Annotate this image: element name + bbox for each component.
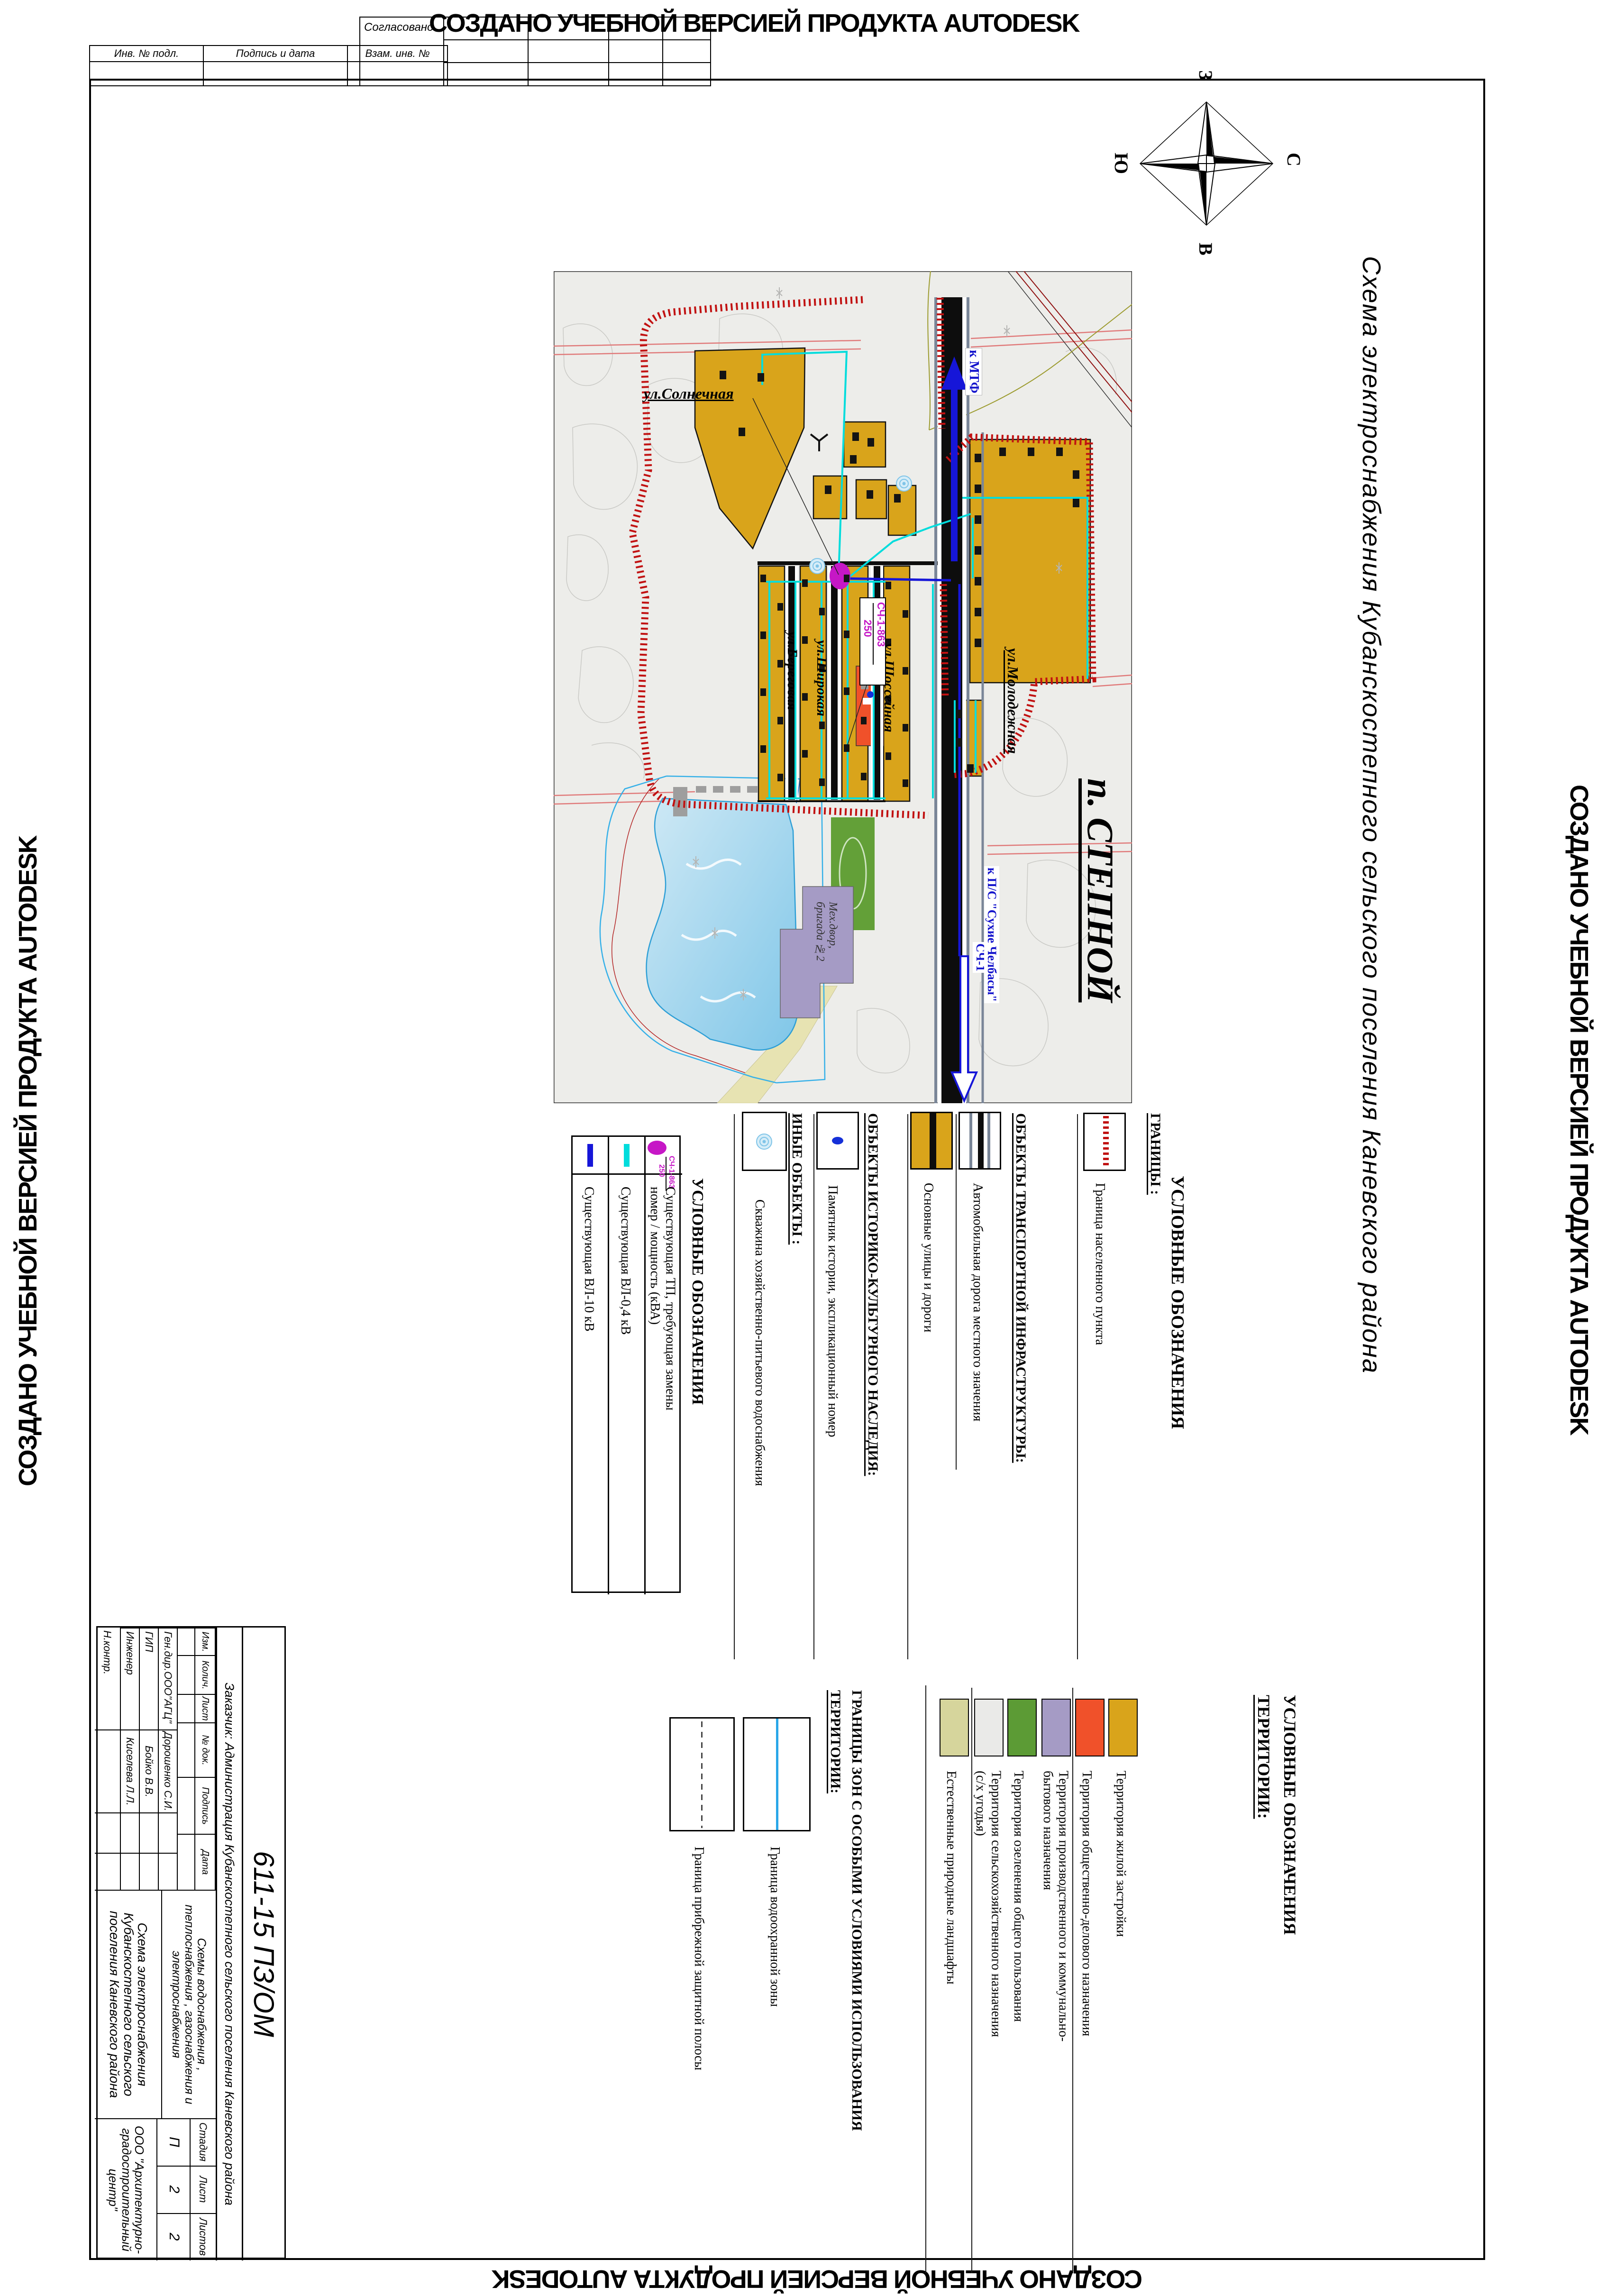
settlement-name: п. СТЕПНОЙ [1079,778,1122,1002]
tb-sig [139,1812,159,1854]
legend-separator [907,1114,908,1659]
tb-project: Схемы водоснабжения , теплоснабжения , г… [161,1890,216,2119]
legend-zones-heading-1: ГРАНИЦЫ ЗОН С ОСОБЫМИ УСЛОВИЯМИ ИСПОЛЬЗО… [849,1690,865,2131]
approval-grid-cell [528,39,609,63]
legend-zones-heading-2: ТЕРРИТОРИИ: [827,1690,843,1793]
territory-swatch-industrial [1041,1699,1071,1756]
watermark-bottom: СОЗДАНО УЧЕБНОЙ ВЕРСИЕЙ ПРОДУКТА AUTODES… [492,2264,1142,2294]
compass-east-label: В [1195,243,1217,256]
approval-grid-cell [443,39,529,63]
legend-power-heading: УСЛОВНЫЕ ОБОЗНАЧЕНИЯ [688,1178,706,1405]
legend-road-label: Автомобильная дорога местного значения [970,1183,985,1421]
tb-date [95,1853,121,1891]
tb-empty [177,1722,195,1778]
territory-swatch-residential [1108,1699,1138,1756]
territory-swatch-natural [940,1699,969,1756]
border-symbol-hatch [1103,1116,1109,1168]
territory-label-natural: Естественные природные ландшафты [943,1771,959,1985]
tb-empty [177,1655,195,1695]
monument-legend-icon [818,1113,858,1168]
legend-territories-heading-2: ТЕРРИТОРИИ: [1254,1695,1274,1819]
legend-transport-heading: ОБЪЕКТЫ ТРАНСПОРТНОЙ ИНФРАСТРУКТУРЫ: [1013,1113,1029,1463]
watermark-right: СОЗДАНО УЧЕБНОЙ ВЕРСИЕЙ ПРОДУКТА AUTODES… [1564,785,1594,1435]
tb-listov-value: 2 [156,2213,191,2260]
stamp-empty-1 [89,61,204,86]
street-symbol-line [930,1113,936,1168]
legend-other-heading: ИНЫЕ ОБЪЕКТЫ : [789,1113,805,1244]
map-panel: ул.Солнечная ул.Береговая ул.Широкая ул.… [554,271,1132,1103]
pond [646,798,798,1050]
stamp-sign-date: Подпись и дата [203,45,348,62]
to-substation-label: к П/С "Сухие Челбасы" [984,866,999,1003]
fraction-bar [666,1157,667,1191]
territory-label-residential: Территория жилой застройки [1113,1771,1128,1937]
tb-list: Лист [194,1694,216,1723]
legend-street-label: Основные улицы и дороги [921,1183,936,1332]
tb-ndok: № док. [194,1722,216,1778]
legend-water-zone-label: Граница водоохранной зоны [767,1847,782,2007]
tb-data: Дата [194,1834,216,1891]
legend-territories-heading-1: УСЛОВНЫЕ ОБОЗНАЧЕНИЯ [1280,1695,1300,1935]
legend-separator [734,1114,735,1659]
street-label-solnechnaya: ул.Солнечная [644,385,734,402]
approval-grid-cell [608,39,663,63]
tb-name-4 [95,1729,121,1813]
approval-grid-cell [662,39,711,63]
road-symbol-line [978,1113,984,1168]
tb-date [158,1853,178,1891]
client: Заказчик: Администрация Кубанскостепного… [216,1628,242,2260]
tb-izm: Изм. [194,1628,216,1656]
legend-separator [956,1114,957,1470]
legend-power-table: СЧ-1-863 250 Существующая ВЛ-10 кВ Сущес… [571,1135,681,1593]
legend-separator [813,1114,814,1659]
legend-coastal-strip-label: Граница прибрежной защитной полосы [691,1847,706,2070]
tb-role-3: Инженер [120,1628,140,1730]
stamp-inv-no: Инв. № подл. [89,45,204,62]
compass-north-label: С [1283,153,1305,166]
border-symbol-box [1083,1113,1126,1171]
well-icon [810,558,825,574]
compass-icon [1131,88,1282,239]
water-zone-symbol-box [743,1717,811,1831]
tp-symbol [648,1141,667,1155]
legend-vl10-label: Существующая ВЛ-10 кВ [581,1187,596,1332]
territory-swatch-agricultural [974,1699,1004,1756]
road-symbol-edge [987,1113,990,1168]
tb-podpis: Подпись [194,1777,216,1835]
tb-name-2: Бойко В.В. [139,1729,159,1813]
legend-vl04-label: Существующая ВЛ-0,4 кВ [618,1187,633,1335]
street-label-molodezhnaya: ул.Молодежная [1004,648,1022,754]
legend-borders-heading: ГРАНИЦЫ : [1147,1113,1163,1195]
tb-list-value: 2 [156,2166,191,2214]
tb-empty [177,1834,195,1891]
tb-kolich: Колич. [194,1655,216,1695]
tb-date [139,1853,159,1891]
sheet-title: Схема электроснабжения Кубанскостепного … [1357,256,1386,1374]
coastal-strip-symbol-box [669,1717,735,1831]
approval-grid-cell [528,62,609,86]
tb-empty [177,1777,195,1835]
road-symbol-box [959,1112,1001,1170]
title-block: 611-15 ПЗ/ОМ Заказчик: Администрация Куб… [96,1626,286,2259]
drawing-sheet: СОЗДАНО УЧЕБНОЙ ВЕРСИЕЙ ПРОДУКТА AUTODES… [0,0,1607,2296]
tb-name-3: Киселева Л.Л. [120,1729,140,1813]
legend-tp-label: Существующая ТП, требующая замены номер … [647,1187,677,1410]
legend-tp-number: СЧ-1-863 [667,1156,676,1189]
street-label-shirokaya: ул.Широкая [813,640,830,716]
compass-west-label: З [1195,70,1217,80]
table-line [608,1137,609,1594]
legend-well-label: Скважина хозяйственно-питьевого водоснаб… [752,1199,767,1486]
territory-swatch-public [1075,1699,1105,1756]
well-legend-icon [743,1113,785,1170]
compass-south-label: Ю [1110,153,1132,174]
legend-main-heading: УСЛОВНЫЕ ОБОЗНАЧЕНИЯ [1167,1176,1188,1429]
approved-cell: Согласовано [359,17,444,86]
territory-label-public: Территория общественно-делового назначен… [1079,1771,1094,2036]
legend-separator [1077,1114,1078,1659]
legend-monument-label: Памятник истории, экспликационный номер [825,1185,840,1437]
watermark-left: СОЗДАНО УЧЕБНОЙ ВЕРСИЕЙ ПРОДУКТА AUTODES… [13,836,43,1486]
water-zone-symbol-line [776,1719,778,1830]
tb-role-1: Ген.дир.ООО"АГЦ" [158,1628,178,1730]
territory-label-greenery: Территория озеленения общего пользования [1011,1771,1026,2022]
vl04-symbol [624,1144,630,1167]
doc-number: 611-15 ПЗ/ОМ [242,1628,284,2260]
legend-tp-power: 250 [657,1164,666,1177]
to-mtf-label: к МТФ [965,348,982,395]
tp-label-box: СЧ-1-863 250 [859,597,886,686]
tb-stage-label: Стадия [190,2118,216,2167]
map-graphics [554,271,1132,1103]
approval-grid-cell [443,17,529,40]
tp-number: СЧ-1-863 [875,602,887,647]
legend-separator [925,1685,926,2273]
tb-sig [95,1812,121,1854]
tb-sheet-name: Схема электроснабжения Кубанскостепного … [95,1890,162,2119]
well-icon [896,476,912,491]
tb-list-label: Лист [190,2166,216,2214]
tb-empty [177,1628,195,1656]
territory-label-agricultural: Территория сельскохозяйственного назначе… [973,1771,1003,2037]
legend-separator [971,1688,972,2273]
monument-point [867,691,874,698]
tb-stage-value: П [156,2118,191,2167]
road-symbol-edge [969,1113,972,1168]
legend-border-label: Граница населенного пункта [1092,1183,1107,1345]
approval-grid-cell [608,62,663,86]
legend-separator [1072,1688,1073,2273]
approval-grid-cell [608,17,663,40]
table-line [644,1137,646,1594]
approval-grid-cell [662,17,711,40]
tb-org: ООО "Архитектурно- градостроительный цен… [95,2118,157,2260]
tp-power: 250 [861,620,874,637]
well-symbol-box [742,1112,787,1171]
tb-sig [120,1812,140,1854]
territory-swatch-greenery [1007,1699,1037,1756]
vl10-symbol [587,1144,593,1167]
tb-name-1: Дорошенко С.И. [158,1729,178,1813]
tb-empty [177,1694,195,1723]
tb-role-4: Н.контр. [95,1628,121,1730]
approval-grid-cell [443,62,529,86]
legend-heritage-heading: ОБЪЕКТЫ ИСТОРИКО-КУЛЬТУРНОГО НАСЛЕДИЯ: [865,1113,881,1476]
stamp-empty-2 [203,61,348,86]
approval-grid-cell [528,17,609,40]
tb-date [120,1853,140,1891]
tb-role-2: ГИП [139,1628,159,1730]
territory-label-industrial: Территория производственного и коммуналь… [1040,1771,1070,2041]
coastal-strip-symbol-line [701,1721,703,1828]
street-label-beregovaya: ул.Береговая [784,631,800,710]
street-symbol-box [910,1112,953,1170]
approval-grid-cell [662,62,711,86]
monument-symbol-box [816,1112,859,1170]
tb-sig [158,1812,178,1854]
meh-dvor-label: Мех.двор, бригада №2 [813,902,839,961]
tb-listov-label: Листов [190,2213,216,2260]
